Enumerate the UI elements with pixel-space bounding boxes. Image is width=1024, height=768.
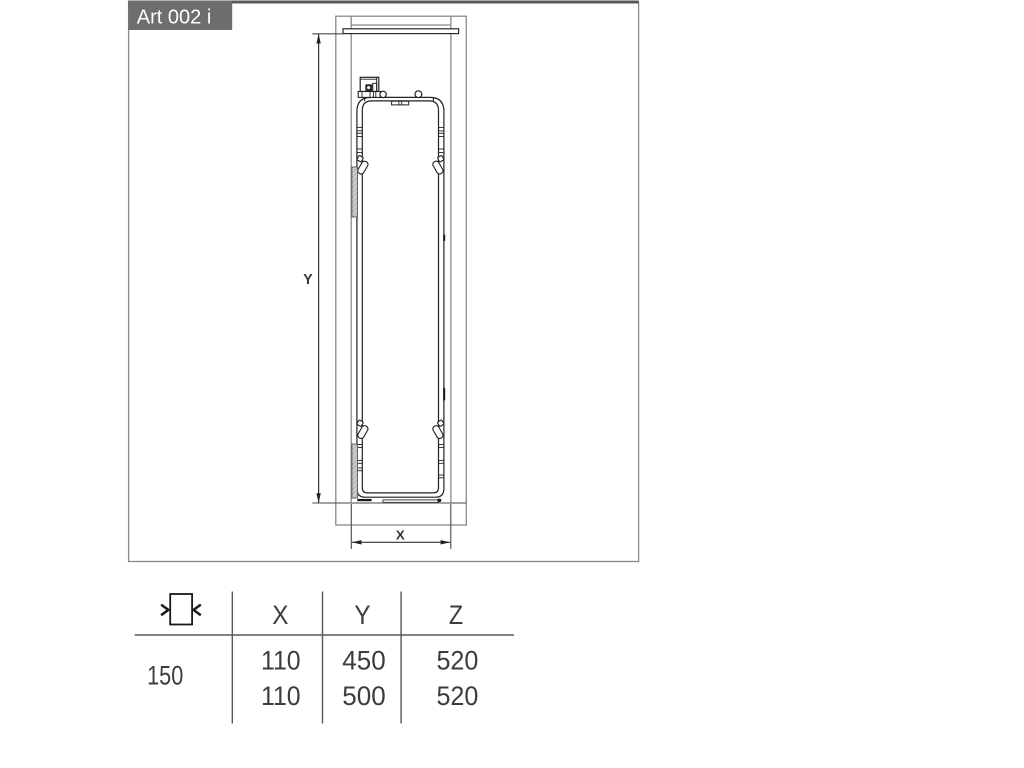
svg-text:X: X (396, 528, 405, 543)
svg-text:500: 500 (342, 681, 385, 711)
svg-text:Art 002 i: Art 002 i (137, 7, 211, 29)
svg-text:520: 520 (436, 681, 478, 711)
svg-text:X: X (272, 600, 288, 630)
svg-text:520: 520 (436, 645, 478, 675)
svg-text:Y: Y (354, 600, 370, 630)
svg-text:110: 110 (261, 645, 301, 675)
svg-text:Y: Y (303, 272, 313, 288)
svg-text:450: 450 (342, 645, 385, 675)
svg-text:Z: Z (449, 600, 463, 630)
svg-text:110: 110 (261, 681, 301, 711)
svg-text:150: 150 (147, 660, 183, 690)
